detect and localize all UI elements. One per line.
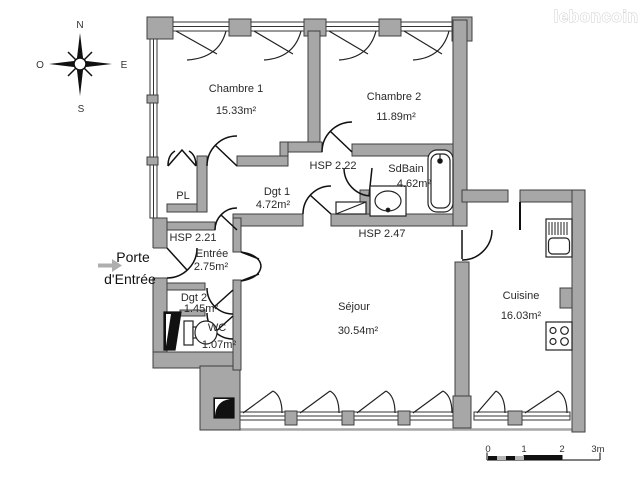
wall-segment: [560, 288, 572, 308]
bathroom-sink-icon: [370, 186, 406, 216]
wall-segment: [453, 396, 471, 428]
entrance-callout-line2: d'Entrée: [104, 271, 156, 287]
scale-tick-2: 2: [559, 444, 564, 455]
room-area-sejour: 30.54m²: [338, 325, 379, 337]
wall-segment: [398, 411, 410, 425]
compass-west-label: O: [36, 60, 44, 71]
bathtub-icon: [428, 150, 453, 212]
compass-center: [74, 58, 86, 70]
wall-segment: [167, 204, 197, 212]
room-label-entree: Entrée: [196, 248, 228, 260]
compass-east-label: E: [121, 60, 128, 71]
compass-north-label: N: [76, 20, 83, 31]
room-area-chambre1: 15.33m²: [216, 105, 257, 117]
room-area-chambre2: 11.89m²: [376, 111, 416, 123]
floor-plan-page: Chambre 1 15.33m² Chambre 2 11.89m² HSP …: [0, 0, 640, 480]
room-label-dgt1: Dgt 1: [264, 186, 290, 198]
shaft-sejour-corner: [214, 398, 234, 418]
room-label-chambre1: Chambre 1: [209, 83, 263, 95]
wall-segment: [308, 31, 320, 144]
room-area-cuisine: 16.03m²: [501, 310, 542, 322]
wall-segment: [233, 214, 303, 226]
wall-segment: [147, 95, 158, 103]
scale-tick-3: 3m: [591, 444, 604, 455]
radiator-icon: [336, 202, 366, 214]
room-area-entree: 2.75m²: [194, 261, 229, 273]
room-label-wc: WC: [208, 322, 226, 334]
wall-segment: [167, 283, 205, 290]
room-label-sdbain: SdBain: [388, 163, 423, 175]
wall-segment: [147, 17, 173, 39]
hsp-corridor-label: HSP 2.22: [310, 160, 357, 172]
leboncoin-logo: leboncoin: [554, 7, 639, 26]
wall-segment: [379, 19, 401, 36]
wall-segment: [233, 280, 241, 370]
wall-segment: [237, 156, 288, 166]
room-label-chambre2: Chambre 2: [367, 91, 421, 103]
room-area-dgt1: 4.72m²: [256, 199, 291, 211]
stove-icon: [546, 322, 572, 350]
room-area-wc: 1.07m²: [202, 339, 237, 351]
compass-south-label: S: [78, 104, 85, 115]
wall-segment: [147, 157, 158, 165]
wall-segment: [462, 190, 508, 202]
kitchen-sink-icon: [546, 219, 572, 257]
entrance-callout-line1: Porte: [116, 249, 150, 265]
floor-plan: Chambre 1 15.33m² Chambre 2 11.89m² HSP …: [0, 0, 640, 480]
wall-segment: [342, 411, 354, 425]
wall-segment: [233, 218, 241, 252]
room-area-sdbain: 4.62m²: [397, 178, 432, 190]
scale-tick-1: 1: [521, 444, 526, 455]
wall-segment: [508, 411, 522, 425]
room-label-sejour: Séjour: [338, 301, 370, 313]
wall-segment: [572, 190, 585, 432]
scale-tick-0: 0: [485, 444, 490, 455]
wall-segment: [285, 411, 297, 425]
hsp-entry-label: HSP 2.21: [170, 232, 217, 244]
wall-segment: [455, 262, 469, 402]
wall-segment: [197, 156, 207, 212]
wall-segment: [167, 222, 215, 230]
wall-segment: [229, 19, 251, 36]
hsp-sejour-label: HSP 2.47: [359, 228, 406, 240]
room-label-cuisine: Cuisine: [503, 290, 540, 302]
room-label-pl: PL: [176, 190, 189, 202]
room-area-dgt2: 1.45m²: [184, 303, 219, 315]
